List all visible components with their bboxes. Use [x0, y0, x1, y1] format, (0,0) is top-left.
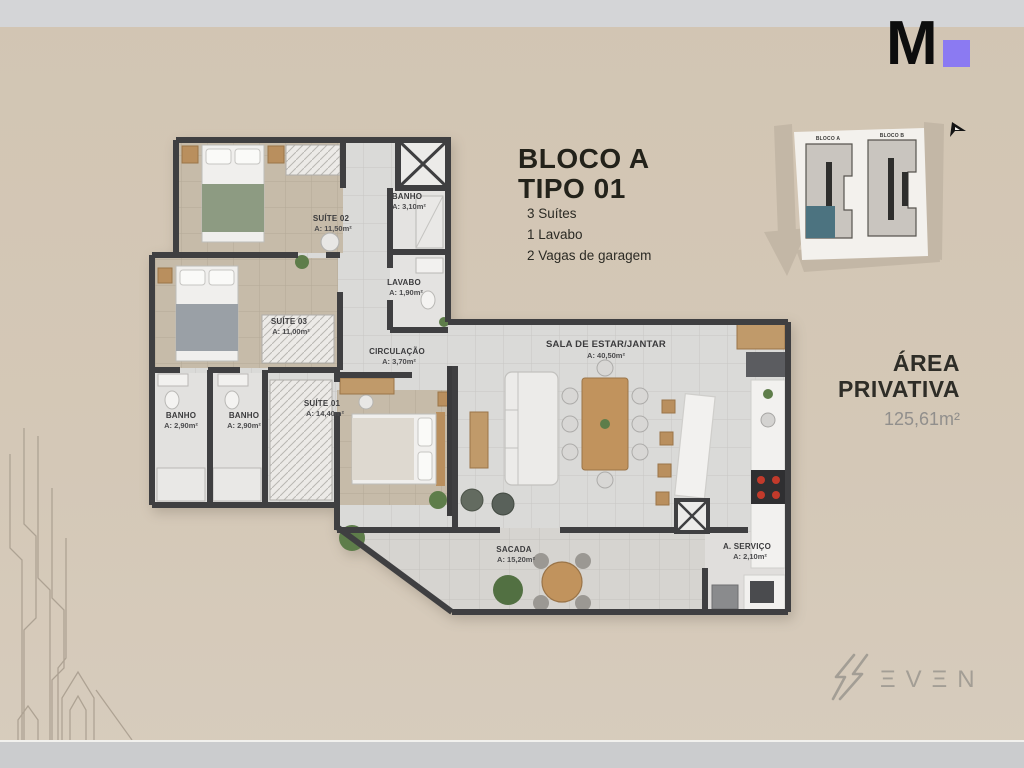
cooktop [751, 470, 785, 504]
suite02-blanket [202, 184, 264, 232]
pillow [235, 149, 260, 164]
dining-chair [597, 360, 613, 376]
label-banho-left-area: A: 2,90m² [164, 421, 198, 430]
label-banho-left: BANHO [166, 411, 196, 420]
banho-right-toilet [225, 391, 239, 409]
pillow [418, 418, 432, 446]
label-sala-area: A: 40,50m² [587, 351, 625, 360]
burner [772, 476, 780, 484]
label-servico-area: A: 2,10m² [733, 552, 767, 561]
suite02-nightstand-left [182, 146, 198, 163]
shaft-bottom [676, 500, 708, 532]
area-value: 125,61m² [795, 409, 960, 430]
banho-right-sink [218, 374, 248, 386]
stool [660, 432, 673, 445]
label-circulacao: CIRCULAÇÃO [369, 347, 425, 356]
label-suite01: SUÍTE 01 [304, 399, 341, 408]
suite01-blanket [352, 418, 414, 480]
suite01-chair [359, 395, 373, 409]
label-circulacao-area: A: 3,70m² [382, 357, 416, 366]
suite03-nightstand [158, 268, 172, 283]
m-logo: M [886, 14, 970, 74]
pouf [492, 493, 514, 515]
label-suite02: SUÍTE 02 [313, 214, 350, 223]
lavabo-toilet [421, 291, 435, 309]
slide-background: M BLOCO A TIPO 01 3 Suítes 1 Lavabo 2 Va… [0, 0, 1024, 768]
elevator-shaft-top [398, 140, 448, 188]
dining-chair [562, 416, 578, 432]
pillow [418, 452, 432, 480]
label-banho-suite02-area: A: 3,10m² [392, 202, 426, 211]
table-centerpiece [600, 419, 610, 429]
label-suite03-area: A: 11,00m² [272, 327, 310, 336]
lavabo-sink [416, 258, 443, 273]
suite03-blanket [176, 304, 238, 351]
label-servico: A. SERVIÇO [723, 542, 771, 551]
pillow [180, 270, 205, 285]
top-strip [0, 0, 1024, 27]
plant [493, 575, 523, 605]
banho-left-toilet [165, 391, 179, 409]
stool [656, 492, 669, 505]
bloco-a-label: BLOCO A [816, 136, 840, 142]
suite02-nightstand-right [268, 146, 284, 163]
bottom-strip [0, 740, 1024, 768]
dining-chair [632, 416, 648, 432]
m-logo-square-icon [943, 40, 970, 67]
label-suite03: SUÍTE 03 [271, 317, 308, 326]
label-suite01-area: A: 14,40m² [306, 409, 344, 418]
dining-chair [562, 444, 578, 460]
stool [662, 400, 675, 413]
washer [712, 585, 738, 609]
dining-chair [632, 444, 648, 460]
label-banho-right: BANHO [229, 411, 259, 420]
dining-chair [632, 388, 648, 404]
label-banho-suite02: BANHO [392, 192, 422, 201]
north-arrow-icon [950, 122, 966, 137]
hall-closet [270, 380, 332, 500]
pouf [461, 489, 483, 511]
area-label-line1: ÁREA [795, 350, 960, 376]
label-sacada-area: A: 15,20m² [497, 555, 535, 564]
stool [658, 464, 671, 477]
seven-logo-text: ΞVΞN [880, 666, 985, 693]
dining-chair [562, 388, 578, 404]
balcony-table [542, 562, 582, 602]
floor-plan: SUÍTE 02 A: 11,50m² BANHO A: 3,10m² LAVA… [140, 108, 810, 642]
balcony-chair [533, 595, 549, 611]
balcony-chair [575, 595, 591, 611]
label-lavabo: LAVABO [387, 278, 421, 287]
highlighted-unit [806, 206, 835, 238]
suite01-desk [340, 378, 394, 394]
burner [757, 476, 765, 484]
pillow [206, 149, 231, 164]
lightning-icon [833, 655, 867, 699]
dining-chair [597, 472, 613, 488]
label-sacada: SACADA [496, 545, 531, 554]
label-lavabo-area: A: 1,90m² [389, 288, 423, 297]
banho-left-shower [157, 468, 205, 501]
suite01-headboard [436, 412, 445, 486]
plant [429, 491, 447, 509]
kitchen-cabinet [737, 324, 785, 349]
servico-tank [750, 581, 774, 603]
sofa [505, 372, 558, 485]
label-sala: SALA DE ESTAR/JANTAR [546, 339, 666, 350]
fridge [746, 352, 785, 377]
suite02-armchair [321, 233, 339, 251]
bloco-b-label: BLOCO B [880, 133, 905, 139]
area-label-line2: PRIVATIVA [795, 376, 960, 402]
private-area-block: ÁREA PRIVATIVA 125,61m² [795, 350, 960, 430]
burner [757, 491, 765, 499]
pillow [209, 270, 234, 285]
label-suite02-area: A: 11,50m² [314, 224, 352, 233]
burner [772, 491, 780, 499]
decorative-lines [0, 428, 140, 740]
banho-left-sink [158, 374, 188, 386]
balcony-chair [575, 553, 591, 569]
tv-console [470, 412, 488, 468]
plant [763, 389, 773, 399]
balcony-chair [533, 553, 549, 569]
seven-logo: ΞVΞN [824, 650, 989, 704]
label-banho-right-area: A: 2,90m² [227, 421, 261, 430]
suite02-wardrobe [286, 145, 340, 175]
m-logo-letter: M [886, 14, 936, 74]
banho-right-shower [213, 468, 261, 501]
kitchen-sink [761, 413, 775, 427]
